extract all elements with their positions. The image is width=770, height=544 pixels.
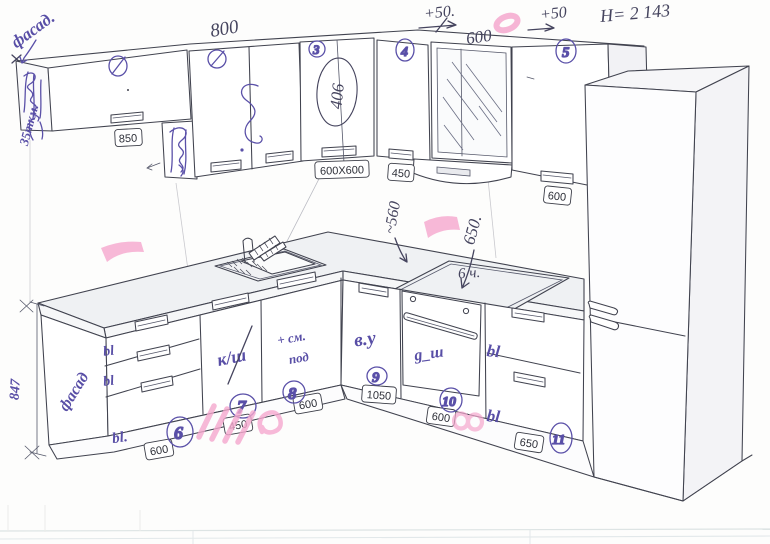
- svg-text:bl: bl: [102, 344, 115, 360]
- svg-text:8: 8: [288, 384, 297, 403]
- svg-text:9: 9: [372, 370, 380, 386]
- svg-text:600: 600: [547, 190, 567, 204]
- svg-text:4: 4: [400, 45, 408, 60]
- svg-text:3: 3: [312, 42, 320, 57]
- svg-text:11: 11: [552, 433, 565, 448]
- svg-text:bl.: bl.: [111, 429, 128, 447]
- svg-text:450: 450: [391, 167, 410, 180]
- svg-text:600: 600: [431, 411, 451, 425]
- svg-text:600: 600: [465, 26, 493, 48]
- svg-text:847: 847: [7, 378, 23, 401]
- svg-text:5: 5: [562, 45, 570, 61]
- svg-text:406: 406: [326, 82, 348, 110]
- svg-text:bl: bl: [102, 374, 115, 390]
- svg-text:10: 10: [442, 395, 456, 410]
- svg-text:в.у: в.у: [353, 328, 378, 352]
- svg-text:600X600: 600X600: [320, 164, 364, 178]
- svg-text:+50: +50: [539, 4, 567, 24]
- svg-text:6: 6: [174, 423, 183, 443]
- svg-text:bl: bl: [486, 341, 501, 361]
- svg-text:6 ч.: 6 ч.: [458, 265, 481, 283]
- svg-text:bl: bl: [486, 406, 501, 426]
- svg-text:850: 850: [119, 133, 138, 146]
- svg-text:+50.: +50.: [423, 3, 455, 23]
- svg-text:1050: 1050: [366, 389, 391, 403]
